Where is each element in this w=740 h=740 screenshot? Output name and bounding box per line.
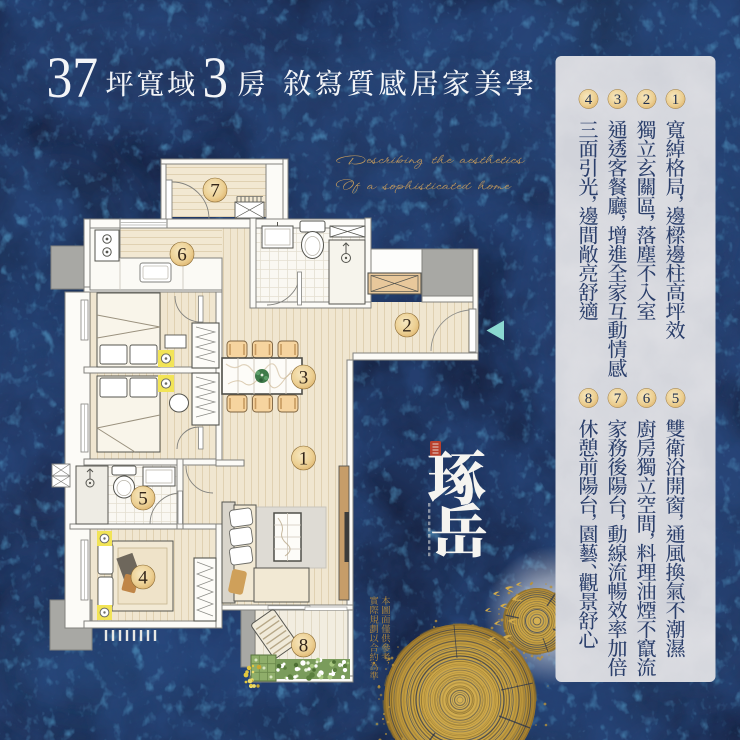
svg-text:2: 2	[402, 315, 412, 336]
svg-text:4: 4	[585, 92, 593, 108]
svg-text:8: 8	[299, 635, 309, 656]
svg-text:5: 5	[672, 391, 680, 407]
svg-text:3: 3	[299, 367, 309, 388]
svg-text:6: 6	[643, 391, 651, 407]
svg-text:5: 5	[138, 488, 148, 509]
svg-text:37: 37	[47, 45, 99, 109]
svg-text:1: 1	[672, 92, 680, 108]
svg-text:6: 6	[177, 244, 187, 265]
svg-text:1: 1	[299, 448, 309, 469]
svg-text:3: 3	[203, 45, 229, 110]
svg-text:2: 2	[643, 92, 651, 108]
svg-text:4: 4	[138, 567, 148, 588]
svg-text:7: 7	[614, 391, 622, 407]
svg-text:7: 7	[210, 180, 220, 201]
svg-text:8: 8	[585, 391, 593, 407]
svg-text:3: 3	[614, 92, 622, 108]
